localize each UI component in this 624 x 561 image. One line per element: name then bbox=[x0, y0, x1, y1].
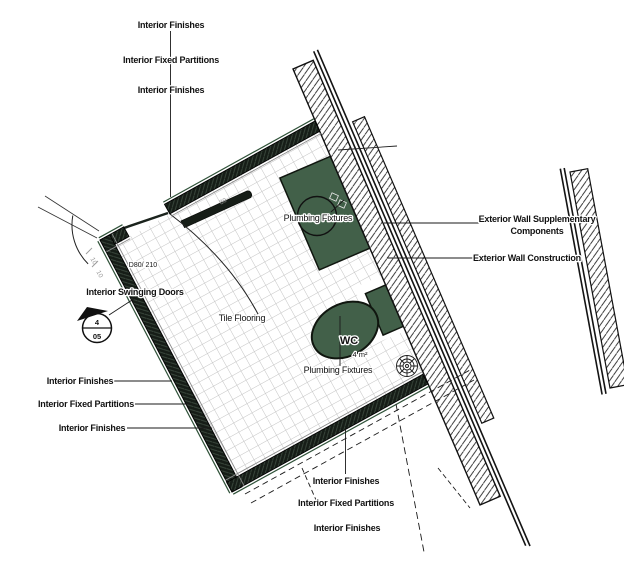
label-exterior-wall-supplementary: Exterior Wall Supplementary bbox=[479, 214, 596, 224]
label-interior-fixed-partitions-top: Interior Fixed Partitions bbox=[123, 55, 219, 65]
label-interior-fixed-partitions-bottom: Interior Fixed Partitions bbox=[298, 498, 394, 508]
room-name: WC bbox=[340, 335, 358, 347]
room-area: 4 m² bbox=[353, 350, 369, 359]
floor-plan-detail-view: 4 05 10 10 80 Interior Finishes Interior… bbox=[0, 0, 624, 561]
label-tile-flooring: Tile Flooring bbox=[219, 313, 266, 323]
label-door-size: D80/ 210 bbox=[129, 262, 158, 269]
label-interior-finishes-top-1: Interior Finishes bbox=[138, 20, 205, 30]
section-sheet-number: 05 bbox=[93, 332, 101, 341]
label-interior-finishes-bottom-2: Interior Finishes bbox=[314, 523, 381, 533]
floor-plan-canvas: 4 05 10 10 80 Interior Finishes Interior… bbox=[0, 0, 624, 561]
label-exterior-wall-construction: Exterior Wall Construction bbox=[473, 253, 581, 263]
label-interior-finishes-left-1: Interior Finishes bbox=[47, 376, 114, 386]
label-interior-finishes-bottom-1: Interior Finishes bbox=[313, 476, 380, 486]
label-interior-fixed-partitions-left: Interior Fixed Partitions bbox=[38, 399, 134, 409]
label-exterior-wall-supplementary-2: Components bbox=[511, 226, 564, 236]
floor-drain-icon bbox=[397, 356, 418, 377]
label-interior-finishes-left-2: Interior Finishes bbox=[59, 423, 126, 433]
label-plumbing-fixtures-lower: Plumbing Fixtures bbox=[304, 365, 373, 375]
label-interior-finishes-top-2: Interior Finishes bbox=[138, 85, 205, 95]
label-plumbing-fixtures-upper: Plumbing Fixtures bbox=[284, 213, 353, 223]
label-interior-swinging-doors: Interior Swinging Doors bbox=[86, 287, 184, 297]
